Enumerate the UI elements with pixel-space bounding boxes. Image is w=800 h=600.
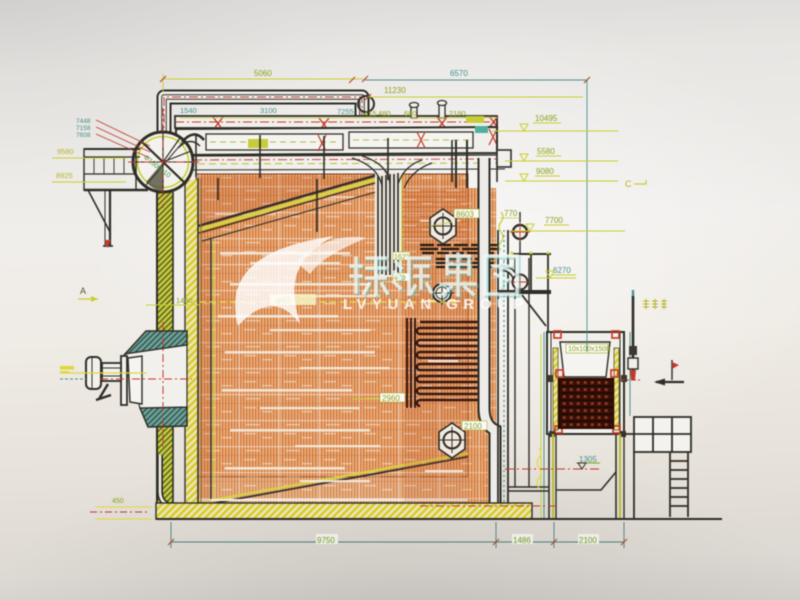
svg-text:9750: 9750 [317,536,335,545]
svg-text:C: C [625,179,632,189]
svg-text:770: 770 [504,209,518,218]
svg-text:5580: 5580 [537,147,555,156]
svg-text:6570: 6570 [450,69,468,78]
svg-text:3100: 3100 [260,106,277,115]
svg-text:A: A [80,286,86,296]
svg-text:9080: 9080 [536,167,554,176]
svg-text:8603: 8603 [456,210,474,219]
svg-text:7700: 7700 [545,216,563,225]
svg-text:2100: 2100 [464,422,482,431]
svg-text:5060: 5060 [254,69,272,78]
svg-text:LVYUAN GROUP: LVYUAN GROUP [343,296,529,313]
svg-text:11230: 11230 [384,86,406,95]
svg-text:7448: 7448 [76,118,91,125]
svg-text:1540: 1540 [180,106,197,115]
svg-text:1486: 1486 [513,536,531,545]
svg-text:2100: 2100 [579,536,597,545]
svg-text:7158: 7158 [76,125,91,132]
svg-text:450: 450 [112,498,124,505]
svg-text:7255: 7255 [337,107,354,116]
svg-text:7608: 7608 [76,132,91,139]
svg-text:1480: 1480 [176,296,193,305]
svg-text:9580: 9580 [57,147,74,156]
svg-text:10x100x1500: 10x100x1500 [568,346,610,353]
svg-text:6270: 6270 [553,266,571,275]
svg-text:8925: 8925 [56,171,73,180]
svg-text:10495: 10495 [535,114,558,123]
svg-text:680: 680 [404,109,417,118]
svg-text:480: 480 [378,109,391,118]
svg-text:2960: 2960 [382,394,400,403]
svg-text:415: 415 [364,109,377,118]
svg-text:2180: 2180 [449,109,466,118]
